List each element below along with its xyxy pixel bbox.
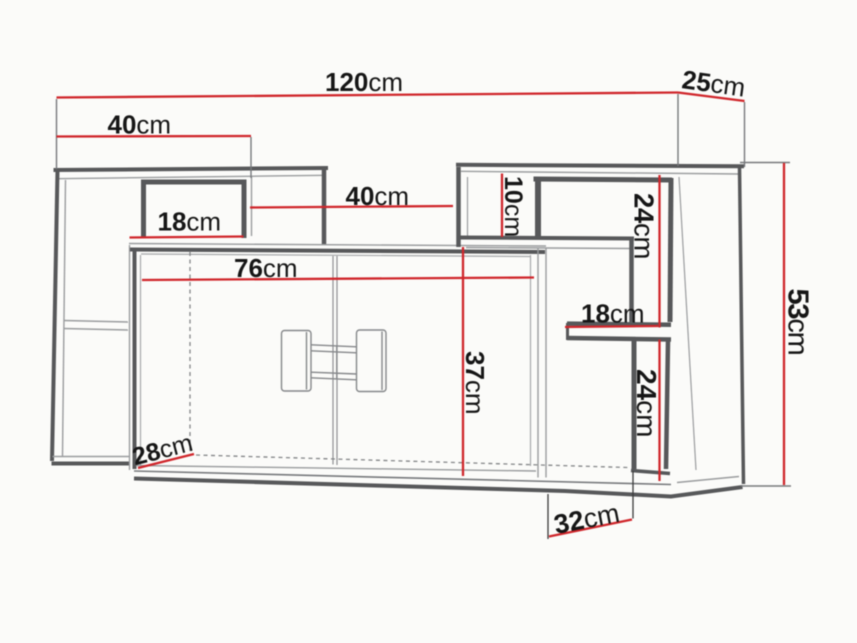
svg-text:10cm: 10cm [499, 176, 527, 237]
svg-text:37cm: 37cm [460, 351, 490, 415]
svg-text:24cm: 24cm [629, 193, 660, 259]
svg-text:18cm: 18cm [581, 299, 645, 329]
svg-text:120cm: 120cm [325, 67, 403, 97]
svg-text:53cm: 53cm [782, 289, 814, 355]
svg-text:18cm: 18cm [158, 207, 222, 237]
svg-text:40cm: 40cm [108, 110, 172, 140]
svg-text:40cm: 40cm [346, 181, 410, 211]
svg-text:76cm: 76cm [234, 253, 298, 283]
svg-text:24cm: 24cm [631, 369, 662, 437]
